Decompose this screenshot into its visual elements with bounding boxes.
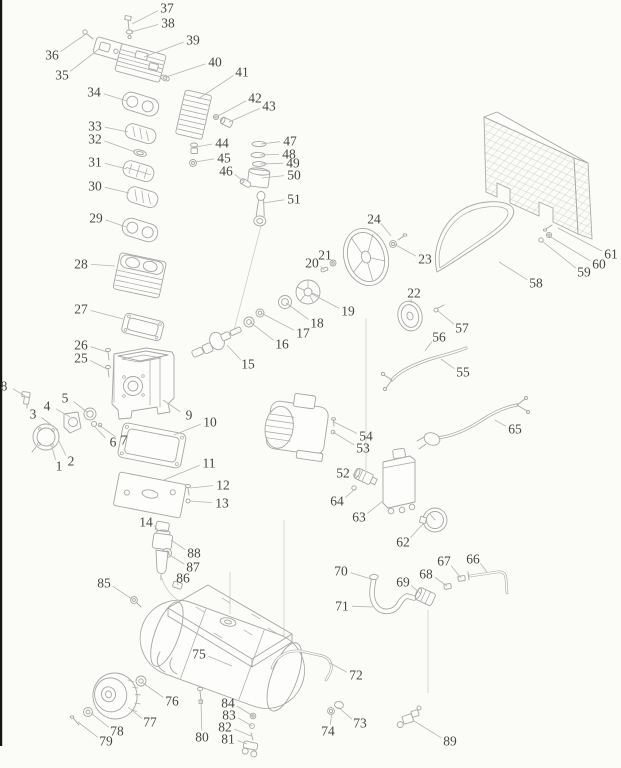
part-label-58: 58	[529, 276, 543, 291]
head-gasket	[120, 90, 161, 118]
cylinder-gasket	[120, 216, 160, 244]
leader-line-84	[237, 706, 253, 716]
drawing	[22, 16, 592, 758]
leader-line-35	[70, 49, 99, 71]
cylinder	[113, 252, 167, 298]
part-label-46: 46	[219, 164, 233, 179]
leader-line-80	[201, 700, 202, 731]
leader-line-37	[132, 11, 158, 24]
part-label-55: 55	[456, 365, 470, 380]
part-label-32: 32	[88, 132, 102, 147]
part-label-57: 57	[455, 321, 469, 336]
part-label-11: 11	[203, 456, 216, 471]
part-label-14: 14	[139, 515, 153, 530]
bearing	[244, 317, 254, 327]
part-label-21: 21	[318, 248, 332, 263]
valve-plate-upper	[124, 122, 158, 145]
part-label-69: 69	[396, 575, 410, 590]
leader-line-42	[218, 101, 246, 116]
leader-line-4	[56, 409, 70, 417]
part-label-63: 63	[352, 510, 366, 525]
part-label-73: 73	[353, 716, 367, 731]
leader-line-25	[90, 361, 107, 369]
base-plate	[113, 472, 186, 518]
leader-line-60	[549, 236, 590, 261]
scan-edge-bar	[0, 0, 2, 746]
leader-line-17	[261, 313, 294, 330]
guard-bolts	[539, 225, 552, 242]
leader-line-64	[345, 489, 355, 497]
crankcase-bolts	[106, 349, 111, 378]
leader-line-30	[105, 187, 129, 193]
leader-line-58	[499, 262, 527, 280]
leader-line-85	[113, 586, 132, 599]
cooler-nut	[213, 114, 218, 119]
leader-line-23	[394, 244, 416, 256]
part-label-76: 76	[165, 694, 179, 709]
part-label-89: 89	[443, 734, 457, 749]
finned-cooler	[175, 90, 211, 140]
part-label-54: 54	[359, 429, 373, 444]
leader-line-55	[441, 359, 454, 369]
part-label-50: 50	[287, 168, 301, 183]
cylinder-head	[115, 44, 167, 83]
part-label-4: 4	[44, 399, 51, 414]
part-label-31: 31	[88, 155, 102, 170]
part-label-74: 74	[321, 724, 335, 739]
leader-line-66	[480, 563, 487, 572]
filter-screw	[83, 30, 93, 39]
wheel	[89, 668, 145, 723]
leader-line-16	[250, 322, 274, 340]
part-label-7: 7	[121, 433, 128, 448]
part-label-2: 2	[68, 454, 75, 469]
part-label-28: 28	[74, 257, 88, 272]
part-label-22: 22	[407, 286, 421, 301]
part-label-64: 64	[330, 494, 344, 509]
part-label-44: 44	[215, 136, 229, 151]
part-label-42: 42	[248, 91, 262, 106]
pipe-nuts	[444, 575, 466, 589]
part-label-29: 29	[89, 211, 103, 226]
leader-line-63	[367, 501, 383, 513]
part-label-51: 51	[287, 192, 301, 207]
leader-line-2	[59, 441, 66, 455]
leader-line-33	[105, 127, 128, 132]
part-label-68: 68	[419, 567, 433, 582]
part-label-43: 43	[262, 99, 276, 114]
part-label-52: 52	[336, 466, 350, 481]
crankcase	[112, 348, 174, 419]
leader-line-54	[334, 422, 357, 433]
part-label-5: 5	[62, 391, 69, 406]
part-label-17: 17	[296, 326, 310, 341]
drain-bolt	[197, 687, 202, 703]
mount-bolt	[131, 597, 141, 607]
steel-tube	[468, 572, 507, 593]
leader-line-24	[381, 224, 391, 236]
valve-parts	[190, 143, 198, 167]
leader-line-79	[78, 722, 98, 737]
leader-line-56	[425, 342, 432, 351]
part-label-70: 70	[334, 564, 348, 579]
leader-line-68	[435, 577, 447, 586]
leader-line-51	[263, 200, 284, 203]
check-valve	[352, 467, 378, 487]
valve-plate-lower	[125, 185, 159, 209]
part-label-26: 26	[74, 338, 88, 353]
leader-line-89	[414, 721, 441, 738]
part-label-18: 18	[310, 316, 324, 331]
part-label-61: 61	[604, 247, 618, 262]
part-label-19: 19	[341, 304, 355, 319]
base-gasket	[117, 422, 187, 469]
cooling-fan	[296, 280, 320, 304]
leader-line-44	[196, 144, 212, 147]
leader-line-71	[352, 606, 373, 607]
leader-line-26	[91, 347, 107, 352]
leader-line-49	[260, 163, 283, 164]
leader-line-65	[495, 420, 506, 426]
hex-fitting	[414, 587, 436, 607]
part-label-8: 8	[1, 379, 8, 394]
part-label-66: 66	[466, 552, 480, 567]
head-bolt	[125, 16, 133, 39]
leader-line-41	[198, 75, 233, 99]
connecting-rod	[253, 191, 268, 226]
leader-line-12	[190, 486, 213, 488]
guard-screw	[434, 305, 444, 312]
flywheel-bolt	[390, 234, 407, 248]
part-label-15: 15	[241, 357, 255, 372]
leader-line-36	[61, 34, 86, 52]
oil-seal	[279, 296, 292, 309]
leader-line-73	[338, 707, 352, 719]
leader-line-27	[91, 311, 123, 319]
drive-belt	[435, 202, 513, 272]
part-label-13: 13	[215, 496, 229, 511]
tank-plug	[328, 700, 345, 714]
flywheel	[337, 223, 395, 291]
part-label-35: 35	[55, 68, 69, 83]
crankcase-gasket	[121, 312, 165, 341]
parts-diagram-page: 1234567891011121314151617181920212223242…	[0, 0, 621, 768]
part-label-37: 37	[160, 1, 174, 16]
part-label-85: 85	[97, 576, 111, 591]
valve-plate-mid	[121, 159, 155, 183]
part-label-39: 39	[186, 33, 200, 48]
head-fitting	[160, 74, 170, 82]
part-label-79: 79	[99, 734, 113, 749]
leader-line-5	[73, 401, 87, 412]
part-label-56: 56	[432, 330, 446, 345]
motor-pulley	[395, 299, 426, 334]
motor	[261, 390, 330, 462]
part-label-84: 84	[221, 696, 235, 711]
part-label-24: 24	[367, 212, 381, 227]
part-label-71: 71	[335, 599, 349, 614]
part-label-30: 30	[88, 179, 102, 194]
leader-line-76	[143, 683, 164, 698]
leader-line-62	[410, 523, 424, 538]
leader-line-48	[260, 154, 279, 155]
piston-rings	[251, 141, 266, 166]
pressure-switch	[383, 448, 415, 514]
leader-line-11	[164, 465, 200, 480]
small-gasket	[133, 148, 147, 157]
leader-line-83	[238, 718, 252, 726]
leader-line-87	[168, 554, 184, 564]
leader-line-82	[234, 729, 251, 736]
part-label-41: 41	[235, 65, 249, 80]
part-label-38: 38	[161, 16, 175, 31]
part-label-77: 77	[143, 715, 157, 730]
part-label-1: 1	[56, 459, 63, 474]
seal-rings	[84, 408, 102, 427]
part-number-labels: 1234567891011121314151617181920212223242…	[1, 1, 618, 749]
cooler-elbow	[219, 116, 233, 127]
leader-line-88	[171, 540, 185, 550]
part-label-9: 9	[186, 408, 193, 423]
part-label-62: 62	[396, 535, 410, 550]
part-label-40: 40	[208, 55, 222, 70]
shaft-ring	[256, 309, 264, 317]
part-label-65: 65	[508, 422, 522, 437]
leader-line-70	[351, 573, 371, 579]
plate-bolts	[186, 485, 191, 504]
leader-line-43	[229, 108, 260, 122]
part-label-72: 72	[349, 668, 363, 683]
motor-bolts	[331, 418, 335, 434]
leader-line-13	[190, 501, 212, 503]
leader-line-18	[286, 303, 309, 319]
leader-line-10	[174, 424, 201, 435]
part-label-23: 23	[418, 252, 432, 267]
belt-guard	[484, 112, 592, 239]
part-label-36: 36	[45, 48, 59, 63]
part-label-34: 34	[87, 85, 101, 100]
leader-line-40	[166, 64, 205, 77]
part-label-33: 33	[88, 119, 102, 134]
leader-line-38	[131, 25, 158, 32]
part-label-25: 25	[74, 351, 88, 366]
part-label-12: 12	[216, 478, 230, 493]
sensor-wire	[381, 348, 466, 391]
part-label-88: 88	[187, 546, 201, 561]
part-label-59: 59	[577, 265, 591, 280]
exploded-parts-diagram: 1234567891011121314151617181920212223242…	[0, 0, 621, 768]
part-label-67: 67	[437, 554, 451, 569]
leader-line-15	[227, 345, 241, 360]
leader-line-45	[195, 159, 214, 162]
leader-line-57	[437, 310, 454, 324]
leader-line-6	[94, 426, 105, 438]
leader-line-59	[542, 241, 576, 268]
part-label-75: 75	[192, 647, 206, 662]
part-label-10: 10	[203, 415, 217, 430]
leader-line-53	[333, 432, 354, 445]
part-label-87: 87	[186, 560, 200, 575]
part-label-27: 27	[74, 302, 88, 317]
part-label-16: 16	[275, 337, 289, 352]
leader-line-46	[235, 174, 243, 181]
leader-line-67	[451, 566, 461, 578]
part-label-6: 6	[110, 435, 117, 450]
leader-line-28	[91, 264, 115, 266]
part-label-20: 20	[305, 256, 319, 271]
part-label-3: 3	[30, 407, 37, 422]
pressure-gauge	[419, 508, 447, 532]
part-label-80: 80	[195, 730, 209, 745]
leader-line-32	[105, 141, 135, 152]
